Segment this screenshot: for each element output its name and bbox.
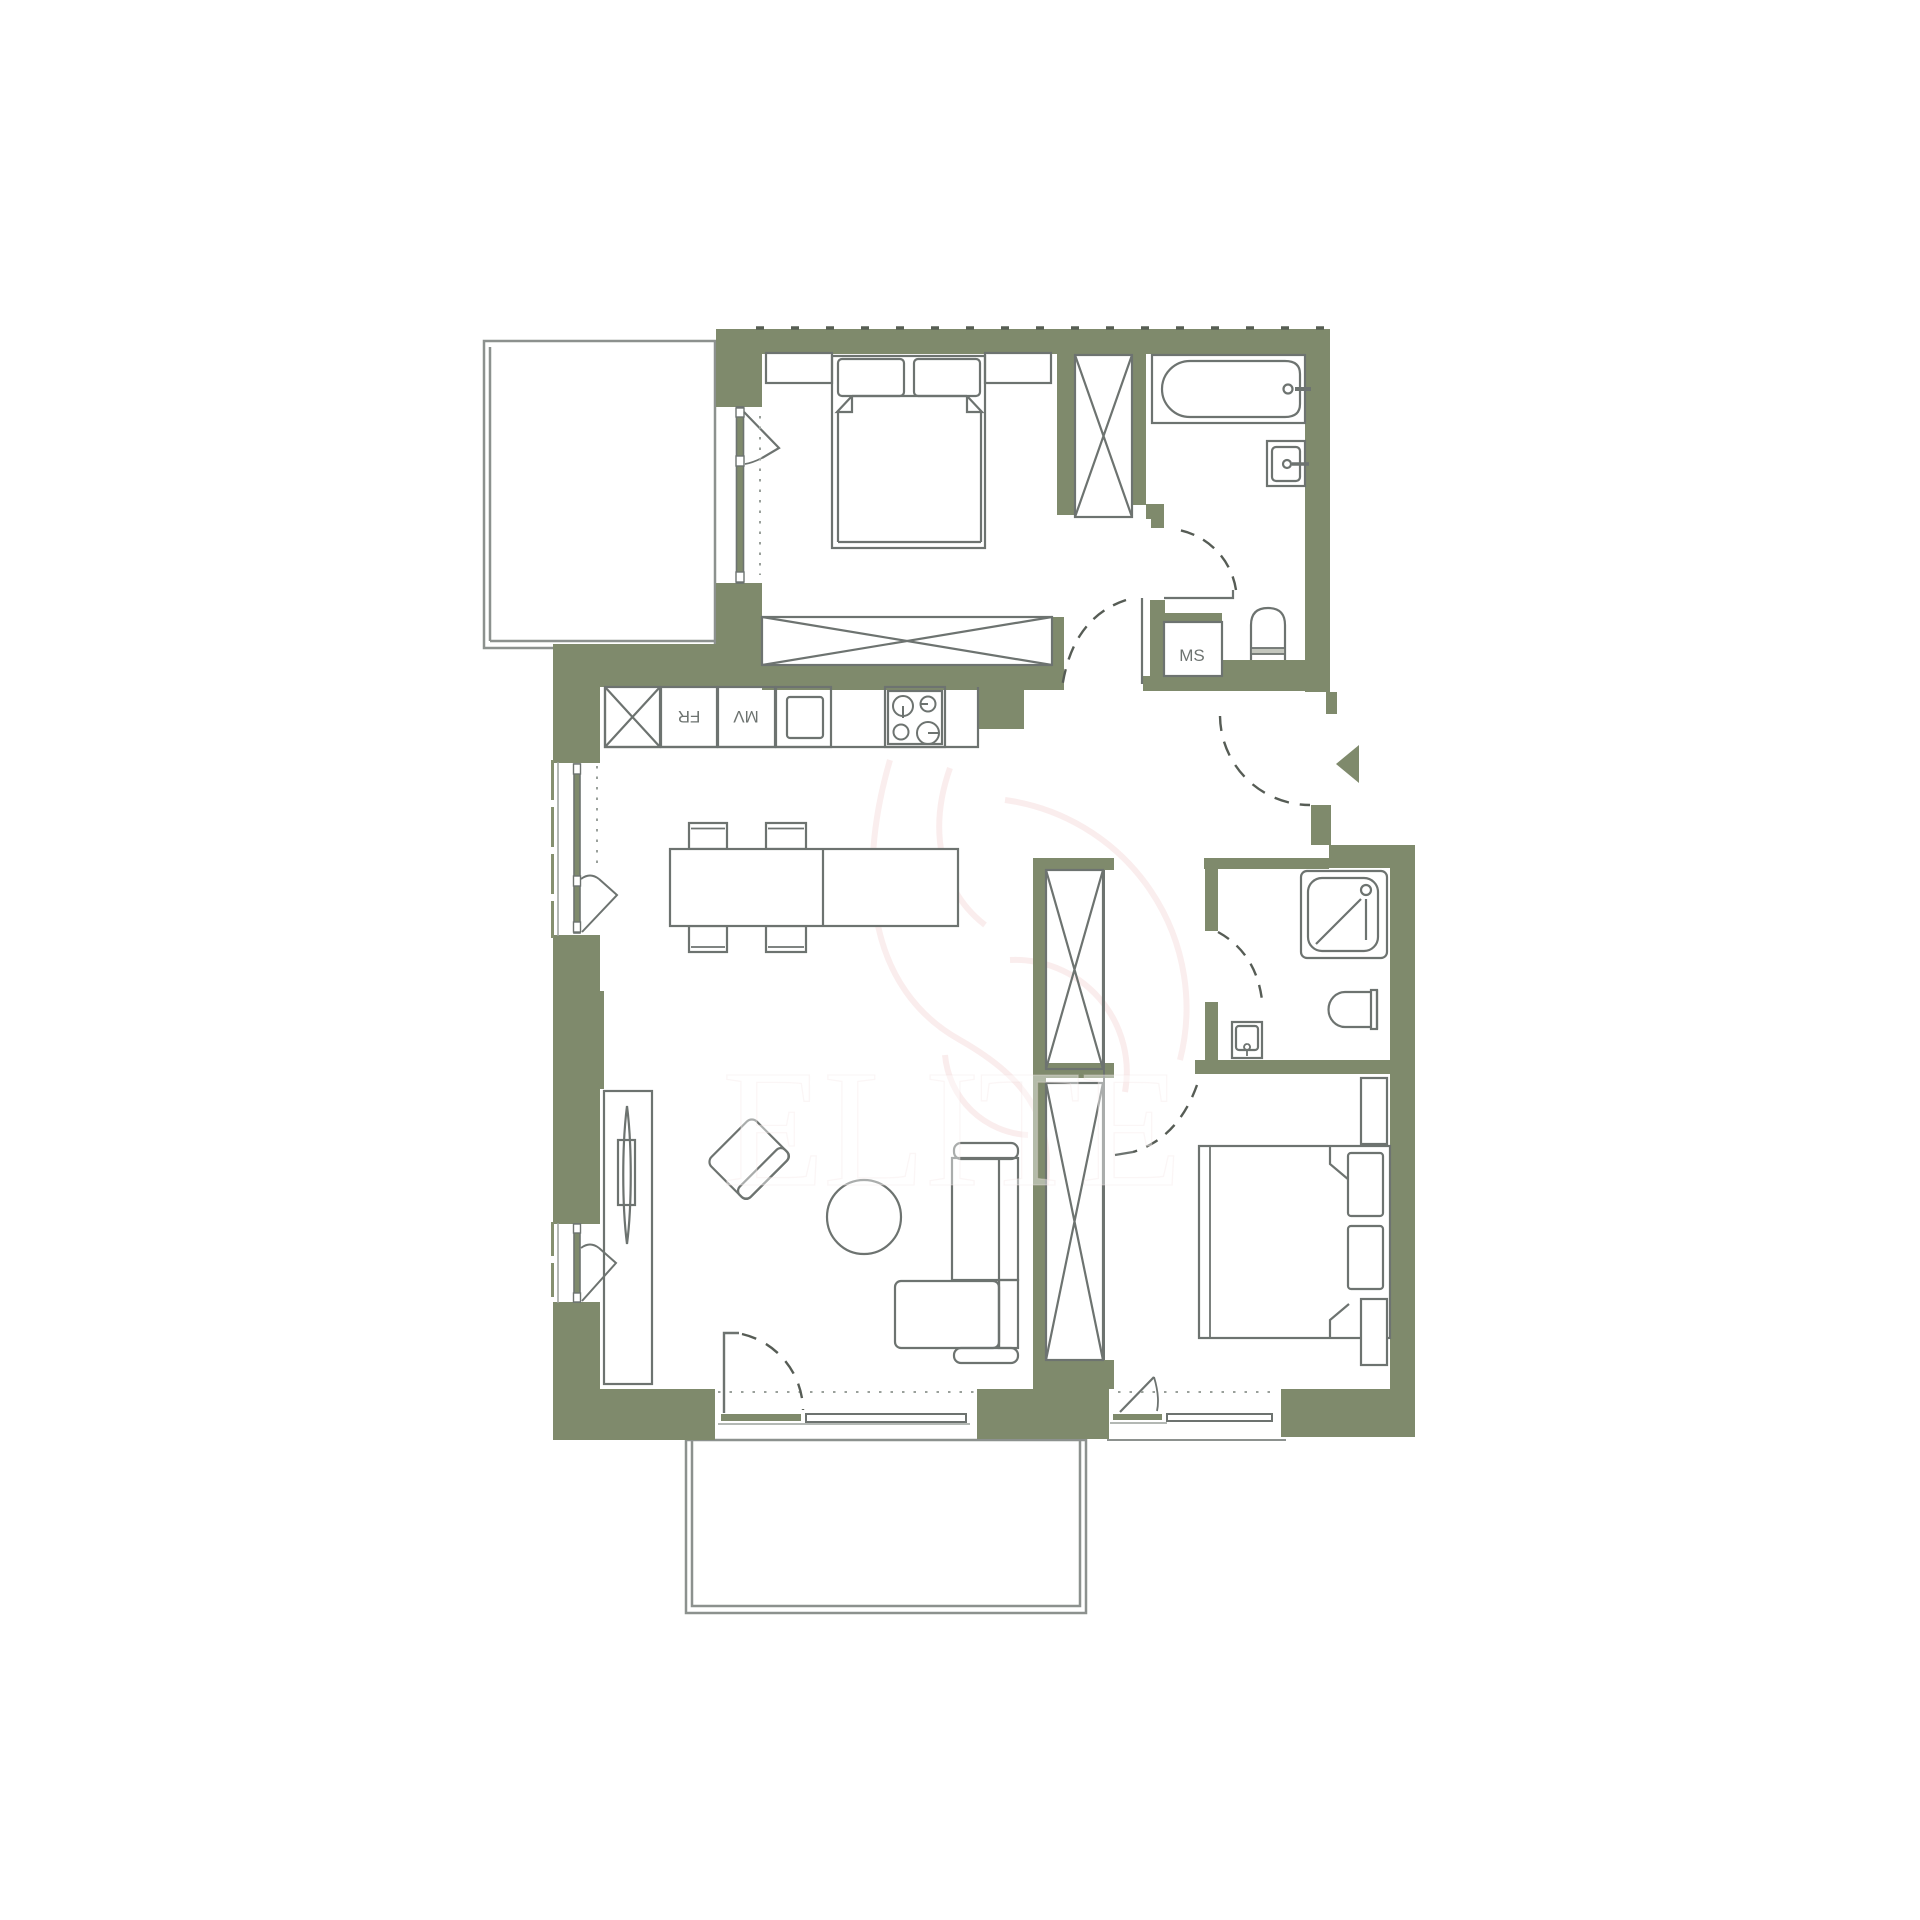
svg-text:MS: MS xyxy=(1179,646,1205,665)
svg-text:MV: MV xyxy=(733,707,759,726)
svg-text:ELITE: ELITE xyxy=(722,1036,1182,1222)
svg-text:FR: FR xyxy=(678,707,701,726)
